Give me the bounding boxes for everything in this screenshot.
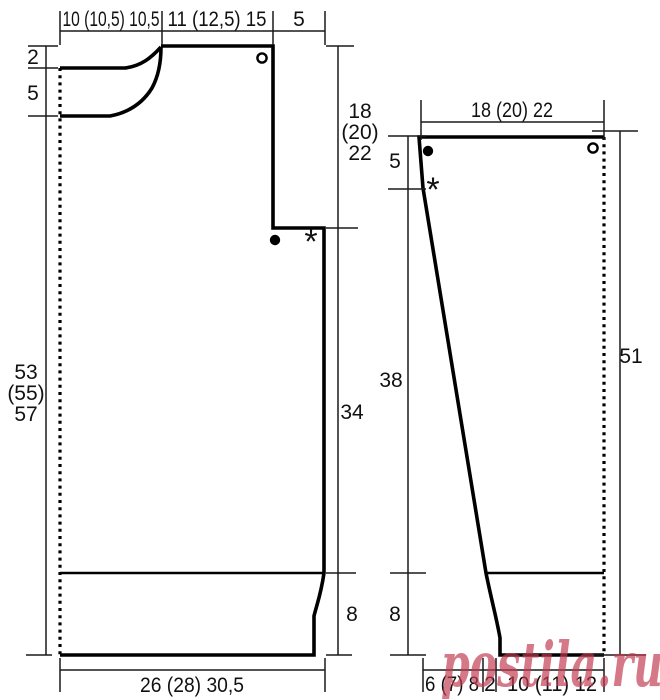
sleeve-asterisk-marker: *	[426, 171, 439, 209]
sleeve-right-measure-ticks	[592, 131, 646, 655]
front-top-neck-label: 11 (12,5) 15	[168, 8, 267, 31]
front-top-shoulder-label: 10 (10,5) 10,5	[63, 8, 160, 31]
front-yoke-label-1: 18	[348, 100, 371, 123]
front-ribbing-height-label: 8	[346, 603, 358, 626]
sleeve-measurements: 18 (20) 22 5 38 8 51 6 (7) 8 2 10 (11) 1…	[379, 99, 646, 696]
front-left-measure-ticks	[26, 46, 58, 655]
front-body-height-label: 34	[340, 401, 364, 424]
sleeve-length-label: 51	[619, 345, 642, 368]
sleeve-upper-label: 38	[379, 369, 402, 392]
front-yoke-label-2: (20)	[341, 121, 378, 144]
front-piece: *	[60, 46, 324, 655]
front-neck-depth-label: 5	[27, 82, 39, 105]
asterisk-marker: *	[304, 223, 317, 261]
sleeve-open-circle-marker	[588, 143, 597, 152]
front-yoke-label-3: 22	[348, 142, 371, 165]
open-circle-marker	[257, 53, 266, 62]
front-neckline	[60, 47, 161, 116]
sleeve-cap-label: 5	[389, 150, 401, 173]
front-bottom-width-label: 26 (28) 30,5	[140, 674, 244, 697]
filled-dot-marker	[270, 235, 280, 245]
pattern-schematic-page: * 10 (10,5) 10,5 11 (12,5) 15 5 2 5 53 (…	[0, 0, 660, 700]
sleeve-outline	[419, 137, 604, 655]
front-top-step-label: 5	[293, 8, 305, 31]
sleeve-left-measure-ticks	[388, 136, 426, 655]
sleeve-ribbing-height-label: 8	[389, 603, 401, 626]
pattern-schematic: * 10 (10,5) 10,5 11 (12,5) 15 5 2 5 53 (…	[0, 0, 660, 700]
front-length-label-2: (55)	[7, 382, 44, 405]
front-length-label-1: 53	[14, 361, 37, 384]
back-neck-depth-label: 2	[27, 46, 39, 69]
sleeve-top-width-label: 18 (20) 22	[471, 99, 553, 122]
sleeve-piece: *	[419, 137, 604, 655]
watermark: postila.ru	[441, 628, 660, 700]
sleeve-filled-dot-marker	[423, 146, 433, 156]
back-neckline	[60, 47, 161, 68]
front-length-label-3: 57	[14, 403, 37, 426]
front-outline	[60, 46, 324, 655]
